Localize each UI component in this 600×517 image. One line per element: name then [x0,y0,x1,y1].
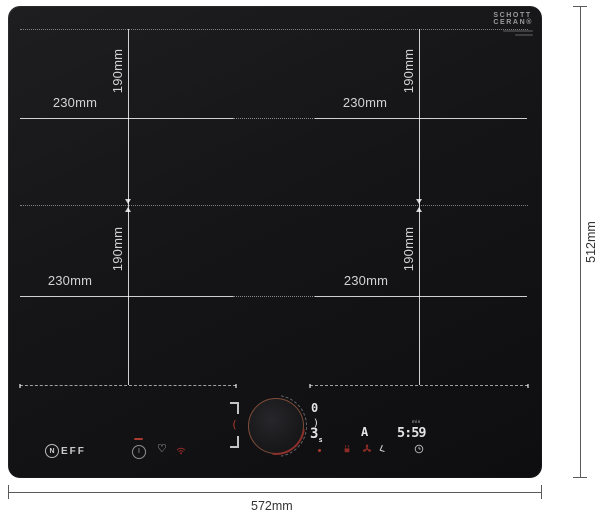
arrowhead-icon [125,199,131,204]
measure-line-230-top-right [315,118,527,119]
power-level-display: 3s [310,426,323,444]
favourite-heart-icon[interactable]: ♡ [157,442,167,455]
dimension-cap [8,485,9,499]
zone-height-label: 190mm [111,41,125,101]
induction-hob-glass: 230mm 230mm 230mm 230mm 190mm 190mm 190m… [8,6,542,478]
measure-line-190-bottom-right [419,205,420,385]
knob-red-arc [235,385,316,466]
measure-line-230-bottom-right [315,296,527,297]
neff-logo-n: N [45,444,59,458]
pot-detection-icon[interactable] [342,444,352,454]
zone-marking-line-top [20,29,528,30]
fine-print-marks [503,30,533,38]
arrowhead-icon [416,199,422,204]
arrowhead-icon [416,207,422,212]
zone-width-label: 230mm [40,274,100,288]
height-dimension-line [580,6,581,478]
ceran-line: CERAN® [493,20,533,27]
dimension-cap [573,6,587,7]
measure-connector-bottom [233,296,315,297]
product-diagram: 230mm 230mm 230mm 230mm 190mm 190mm 190m… [0,0,600,517]
zone-width-label: 230mm [336,274,396,288]
zone-bracket-bottom-icon [230,436,239,448]
zone-height-label: 190mm [402,41,416,101]
overall-height-label: 512mm [584,212,598,272]
timer-clock-icon[interactable] [414,444,424,454]
arrowhead-icon [125,207,131,212]
zone-marking-line-bottom-right [310,385,528,386]
wifi-icon[interactable] [175,444,187,456]
neff-logo-text: EFF [61,446,86,457]
status-red-dot [318,449,321,452]
overall-width-label: 572mm [251,499,293,513]
dimension-cap [573,477,587,478]
zone-height-label: 190mm [111,219,125,279]
zone-marking-line-middle [20,205,528,206]
measure-line-190-top-right [419,29,420,205]
timer-display: 5:59 [397,425,426,441]
schott-ceran-logo: SCHOTT CERAN® [493,13,533,26]
zone-bracket-top-icon [230,402,239,414]
power-button[interactable]: I [132,445,146,459]
zone-indicator-display: A [361,425,368,439]
measure-line-230-top-left [20,118,233,119]
zone-marking-line-bottom-left [20,385,236,386]
power-level-suffix: s [318,436,322,444]
neff-logo: N EFF [45,444,86,458]
dimension-cap [541,485,542,499]
fan-icon[interactable] [362,444,372,454]
power-active-indicator [134,438,143,440]
width-dimension-line [8,492,542,493]
zone-width-label: 230mm [45,96,105,110]
twistpad-knob[interactable] [248,398,304,454]
zone-bracket-active-icon: ( [231,418,238,431]
measure-line-190-bottom-left [128,205,129,385]
zone-height-label: 190mm [402,219,416,279]
timer-unit-label: min [412,419,421,424]
wipe-protection-icon[interactable] [376,444,386,454]
measure-line-190-top-left [128,29,129,205]
measure-connector-top [233,118,315,119]
measure-line-230-bottom-left [20,296,233,297]
zone-width-label: 230mm [335,96,395,110]
segment-display-top: 0 [311,401,318,415]
